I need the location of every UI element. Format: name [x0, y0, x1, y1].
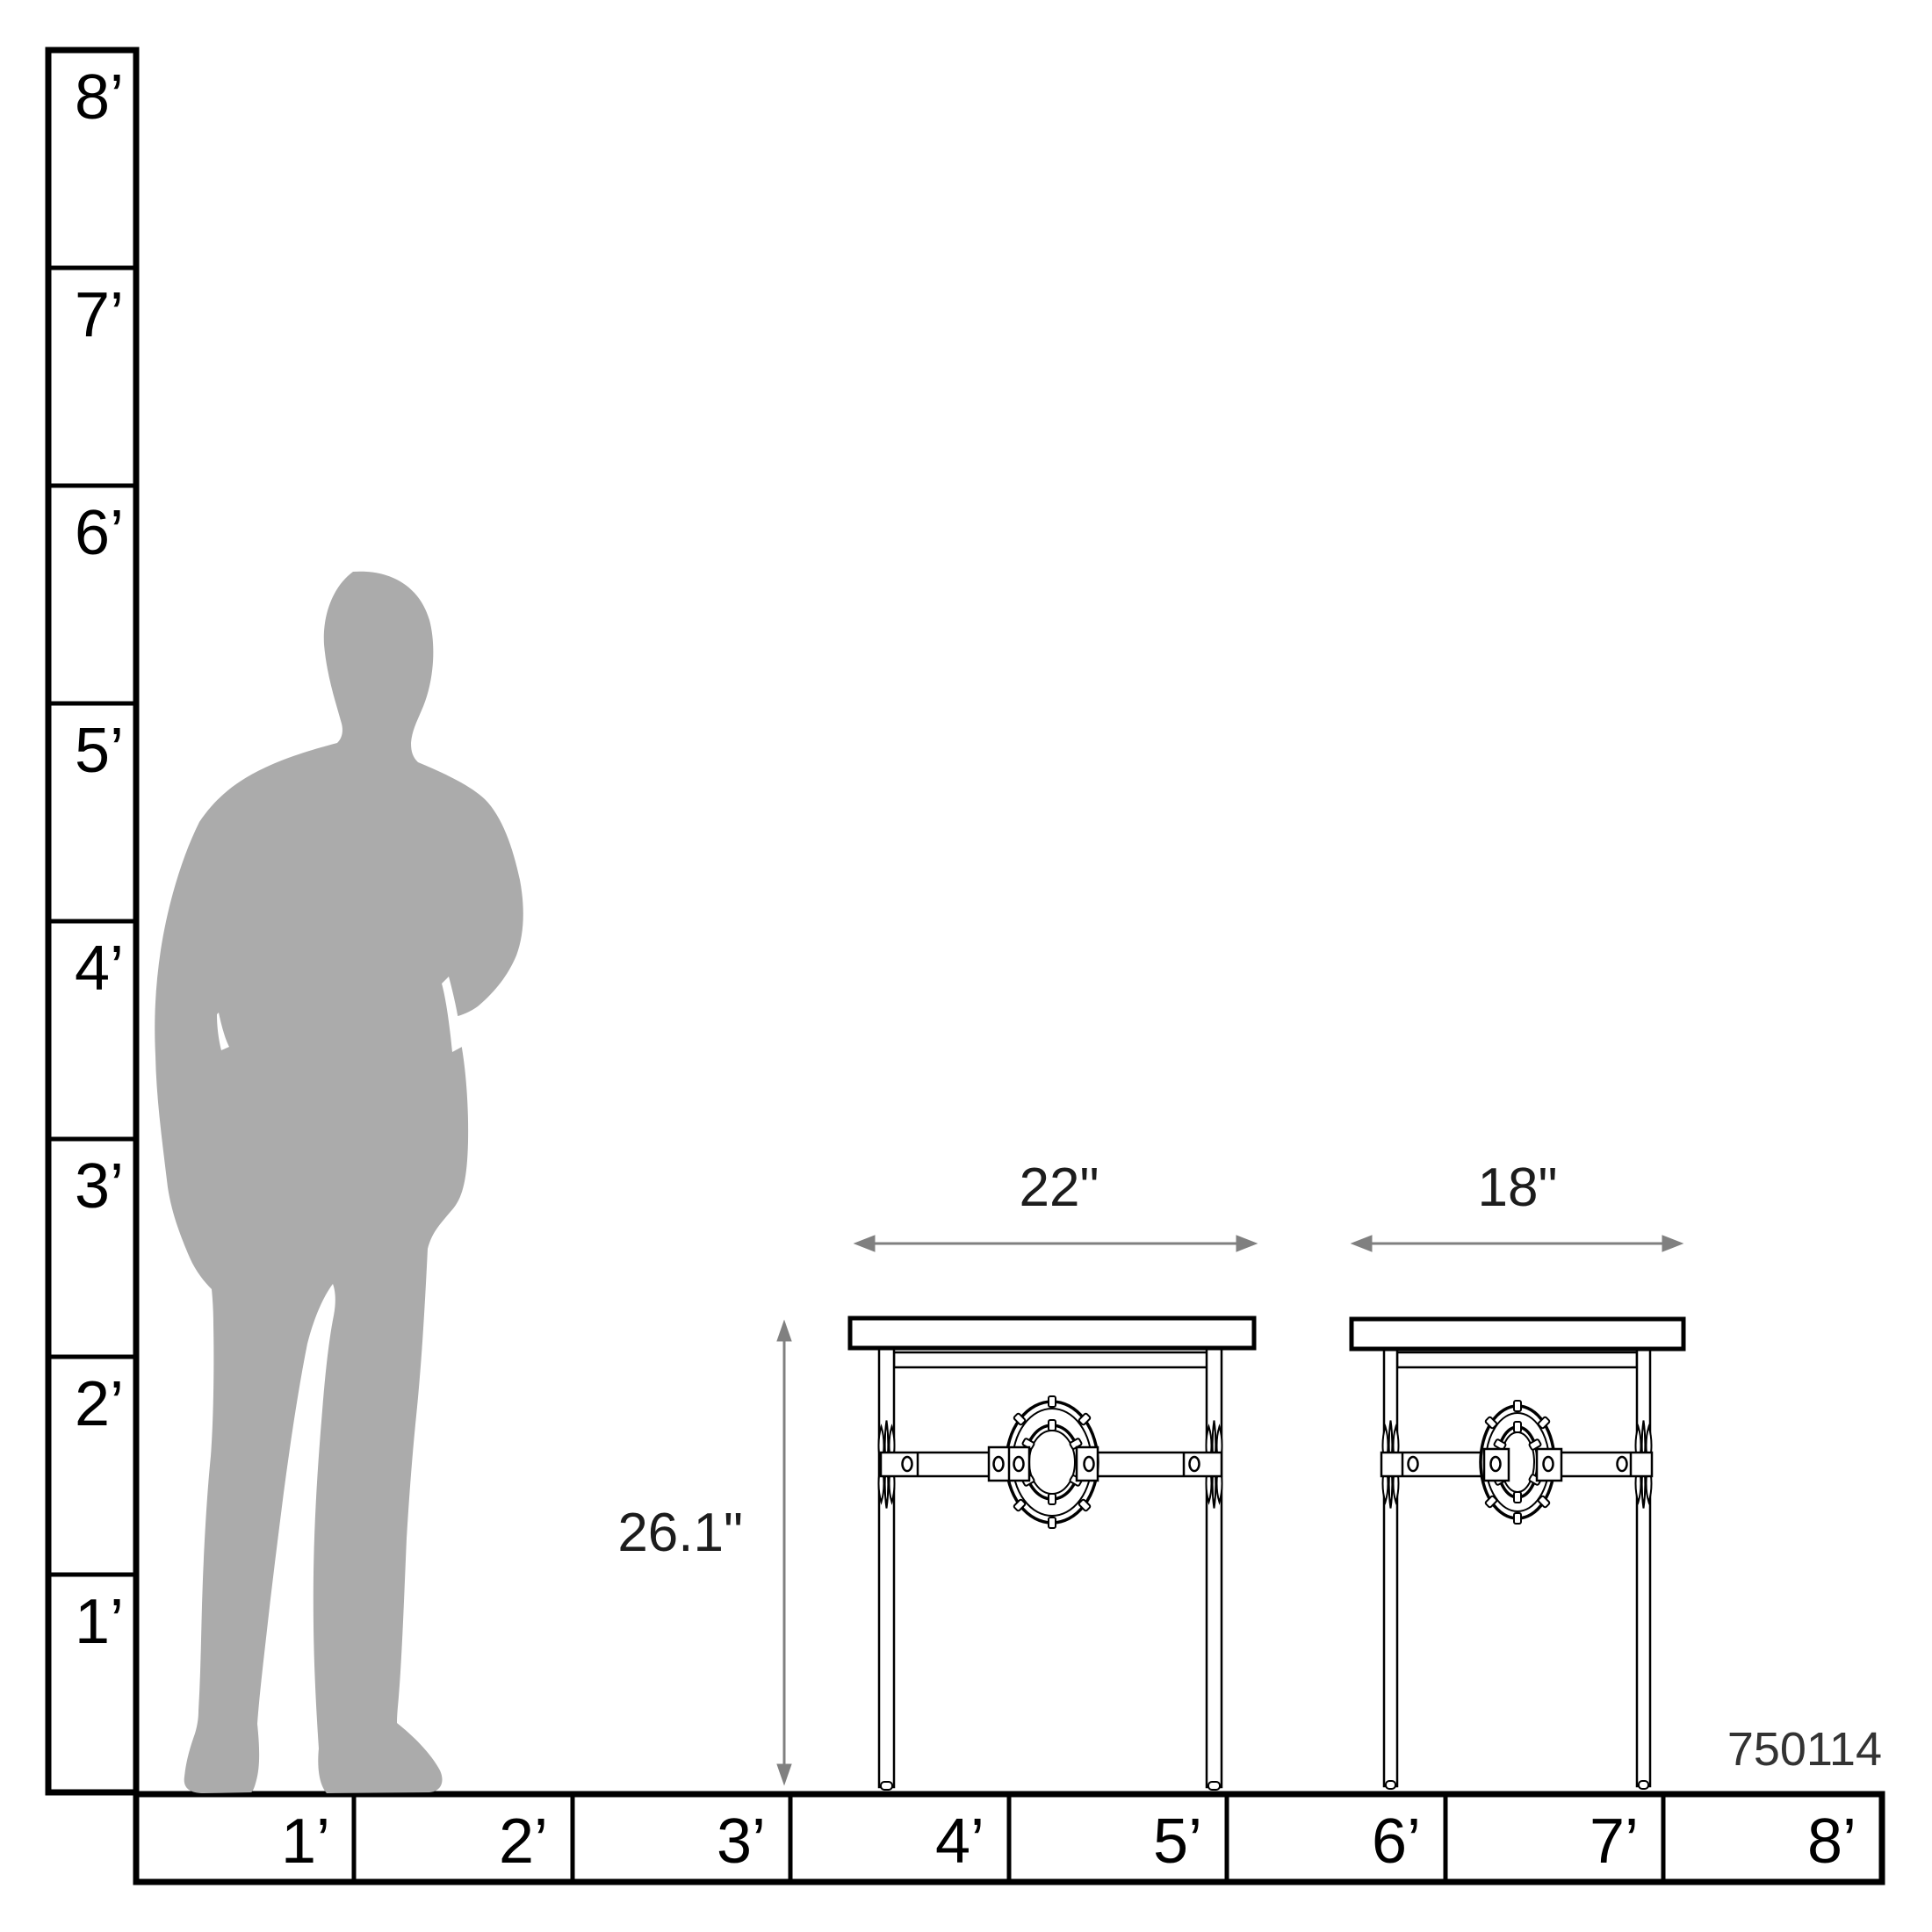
horizontal-ruler-label-2ft: 2’ — [499, 1806, 548, 1877]
vertical-ruler: 8’ 7’ 6’ 5’ 4’ 3’ 2’ 1’ — [48, 50, 136, 1792]
horizontal-ruler-label-1ft: 1’ — [281, 1806, 330, 1877]
horizontal-ruler: 1’ 2’ 3’ 4’ 5’ 6’ 7’ 8’ — [136, 1794, 1882, 1882]
arrow-head-left-icon — [1352, 1236, 1372, 1251]
table-foot-right — [1639, 1781, 1648, 1789]
strap-rivet — [1491, 1457, 1501, 1471]
table-foot-left — [1386, 1781, 1395, 1789]
table-leg-left — [879, 1348, 894, 1787]
strap-rivet — [1618, 1457, 1627, 1471]
strap-rivet — [1544, 1457, 1554, 1471]
arrow-head-right-icon — [1236, 1236, 1257, 1251]
height-dimension: 26.1" — [617, 1321, 791, 1784]
strap-rivet — [1409, 1457, 1418, 1471]
horizontal-ruler-label-7ft: 7’ — [1590, 1806, 1639, 1877]
horizontal-ruler-label-8ft: 8’ — [1807, 1806, 1856, 1877]
width-dimension-large: 22" — [854, 1157, 1257, 1251]
arrow-head-left-icon — [854, 1236, 875, 1251]
strap-rivet — [994, 1457, 1004, 1471]
width-dimension-small-label: 18" — [1478, 1157, 1558, 1218]
table-leg-right — [1207, 1348, 1222, 1787]
vertical-ruler-label-4ft: 4’ — [75, 934, 124, 1004]
height-dimension-label: 26.1" — [617, 1503, 743, 1563]
table-top — [1352, 1319, 1683, 1349]
arrow-head-up-icon — [777, 1321, 791, 1341]
horizontal-ruler-label-6ft: 6’ — [1372, 1806, 1421, 1877]
strap-rivet — [1190, 1457, 1200, 1471]
table-top — [850, 1318, 1254, 1348]
table-apron — [894, 1352, 1207, 1367]
table-apron — [1397, 1352, 1637, 1367]
person-silhouette — [155, 572, 523, 1793]
arrow-head-right-icon — [1662, 1236, 1683, 1251]
side-table-small — [1352, 1319, 1683, 1789]
table-leg-right — [1637, 1349, 1650, 1786]
vertical-ruler-label-3ft: 3’ — [75, 1151, 124, 1222]
arrow-head-down-icon — [777, 1764, 791, 1784]
width-dimension-small: 18" — [1352, 1157, 1683, 1251]
vertical-ruler-label-6ft: 6’ — [75, 498, 124, 568]
vertical-ruler-label-1ft: 1’ — [75, 1587, 124, 1657]
horizontal-ruler-label-3ft: 3’ — [717, 1806, 766, 1877]
product-sku: 750114 — [1727, 1723, 1882, 1776]
vertical-ruler-label-7ft: 7’ — [75, 280, 124, 350]
horizontal-ruler-label-4ft: 4’ — [935, 1806, 984, 1877]
table-foot-left — [881, 1782, 892, 1790]
strap-rivet — [1014, 1457, 1024, 1471]
side-table-large — [850, 1318, 1254, 1790]
horizontal-ruler-label-5ft: 5’ — [1153, 1806, 1202, 1877]
dimension-diagram-page: 8’ 7’ 6’ 5’ 4’ 3’ 2’ 1’ 1’ 2’ 3’ 4’ 5’ 6… — [0, 0, 1932, 1932]
vertical-ruler-label-2ft: 2’ — [75, 1369, 124, 1439]
table-leg-left — [1384, 1349, 1397, 1786]
strap-rivet — [903, 1457, 912, 1471]
dimension-diagram: 8’ 7’ 6’ 5’ 4’ 3’ 2’ 1’ 1’ 2’ 3’ 4’ 5’ 6… — [0, 0, 1932, 1932]
vertical-ruler-label-8ft: 8’ — [75, 62, 124, 133]
vertical-ruler-label-5ft: 5’ — [75, 716, 124, 786]
width-dimension-large-label: 22" — [1020, 1157, 1099, 1218]
strap-rivet — [1085, 1457, 1094, 1471]
standing-man-silhouette — [155, 572, 523, 1793]
table-foot-right — [1208, 1782, 1220, 1790]
